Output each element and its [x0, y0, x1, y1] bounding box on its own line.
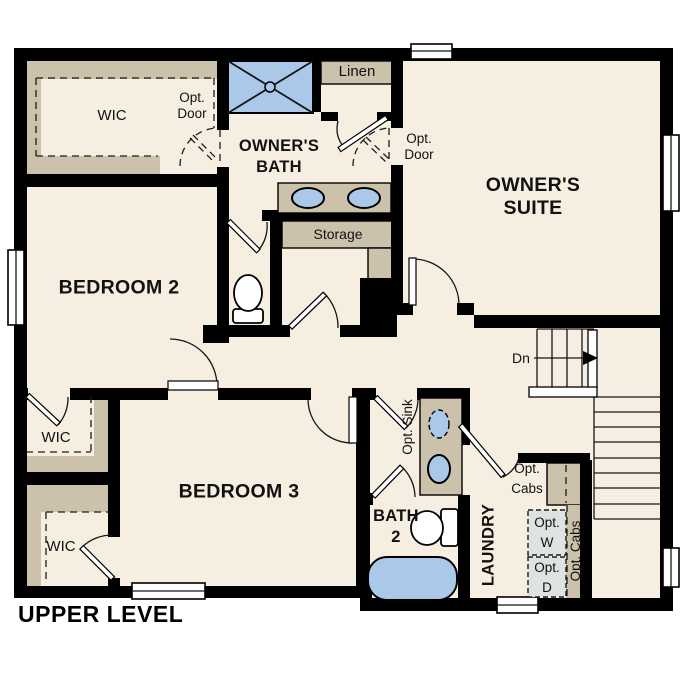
owners-suite-label: OWNER'SSUITE — [486, 174, 581, 220]
bath2-vanity-icon — [420, 398, 462, 495]
bedroom2-door — [168, 381, 218, 390]
bedroom3-door — [349, 397, 357, 443]
bedroom2-label: BEDROOM 2 — [59, 277, 180, 300]
stairs-down-label: Dn — [512, 350, 530, 366]
opt-dryer-label: Opt.D — [534, 558, 560, 598]
bathtub-icon — [368, 557, 457, 600]
double-vanity-icon — [278, 183, 391, 213]
floor-plan-drawing — [0, 0, 687, 687]
bedroom2-wic-label: WIC — [41, 430, 70, 446]
opt-cabs-label: Opt.Cabs — [511, 459, 543, 499]
laundry-label: LAUNDRY — [479, 504, 500, 586]
owners-suite-door — [409, 258, 416, 305]
optional-sink-icon — [429, 410, 449, 438]
opt-cabs-vertical-label: Opt. Cabs — [568, 521, 584, 582]
shower-icon — [228, 61, 313, 113]
storage-label: Storage — [313, 226, 362, 242]
bath2-label: BATH2 — [373, 506, 419, 548]
linen-label: Linen — [339, 64, 376, 80]
owners-bath-label: OWNER'SBATH — [239, 136, 319, 178]
floor-plan: WIC Opt.Door OWNER'SBATH Linen Opt.Door … — [0, 0, 687, 687]
opt-door-label: Opt.Door — [177, 90, 206, 122]
bedroom3-label: BEDROOM 3 — [179, 481, 300, 504]
owners-wic-label: WIC — [97, 108, 126, 124]
bedroom3-wic-label: WIC — [46, 539, 75, 555]
page-title: UPPER LEVEL — [18, 606, 183, 622]
opt-door-label: Opt.Door — [404, 131, 433, 163]
opt-sink-label: Opt. Sink — [400, 399, 416, 455]
opt-washer-label: Opt.W — [534, 513, 560, 553]
toilet-icon — [233, 275, 263, 323]
